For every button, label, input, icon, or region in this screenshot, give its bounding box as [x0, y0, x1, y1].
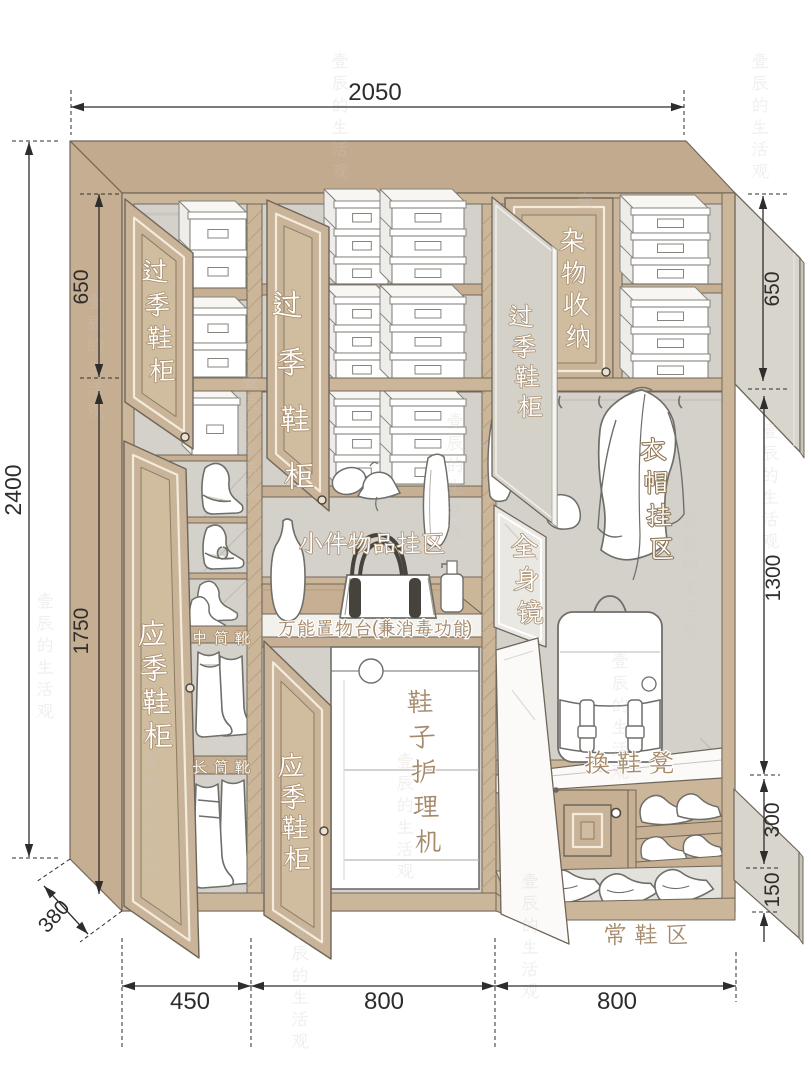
svg-text:800: 800	[364, 988, 404, 1015]
svg-text:2400: 2400	[0, 464, 26, 515]
svg-text:450: 450	[170, 988, 210, 1015]
svg-text:150: 150	[761, 872, 784, 907]
svg-text:): )	[466, 618, 472, 639]
svg-text:1300: 1300	[762, 555, 785, 602]
svg-text:650: 650	[70, 269, 93, 304]
svg-text:650: 650	[761, 271, 784, 306]
svg-text:1750: 1750	[70, 608, 93, 655]
svg-text:800: 800	[597, 988, 637, 1015]
svg-text:300: 300	[761, 802, 784, 837]
svg-text:2050: 2050	[348, 79, 401, 106]
